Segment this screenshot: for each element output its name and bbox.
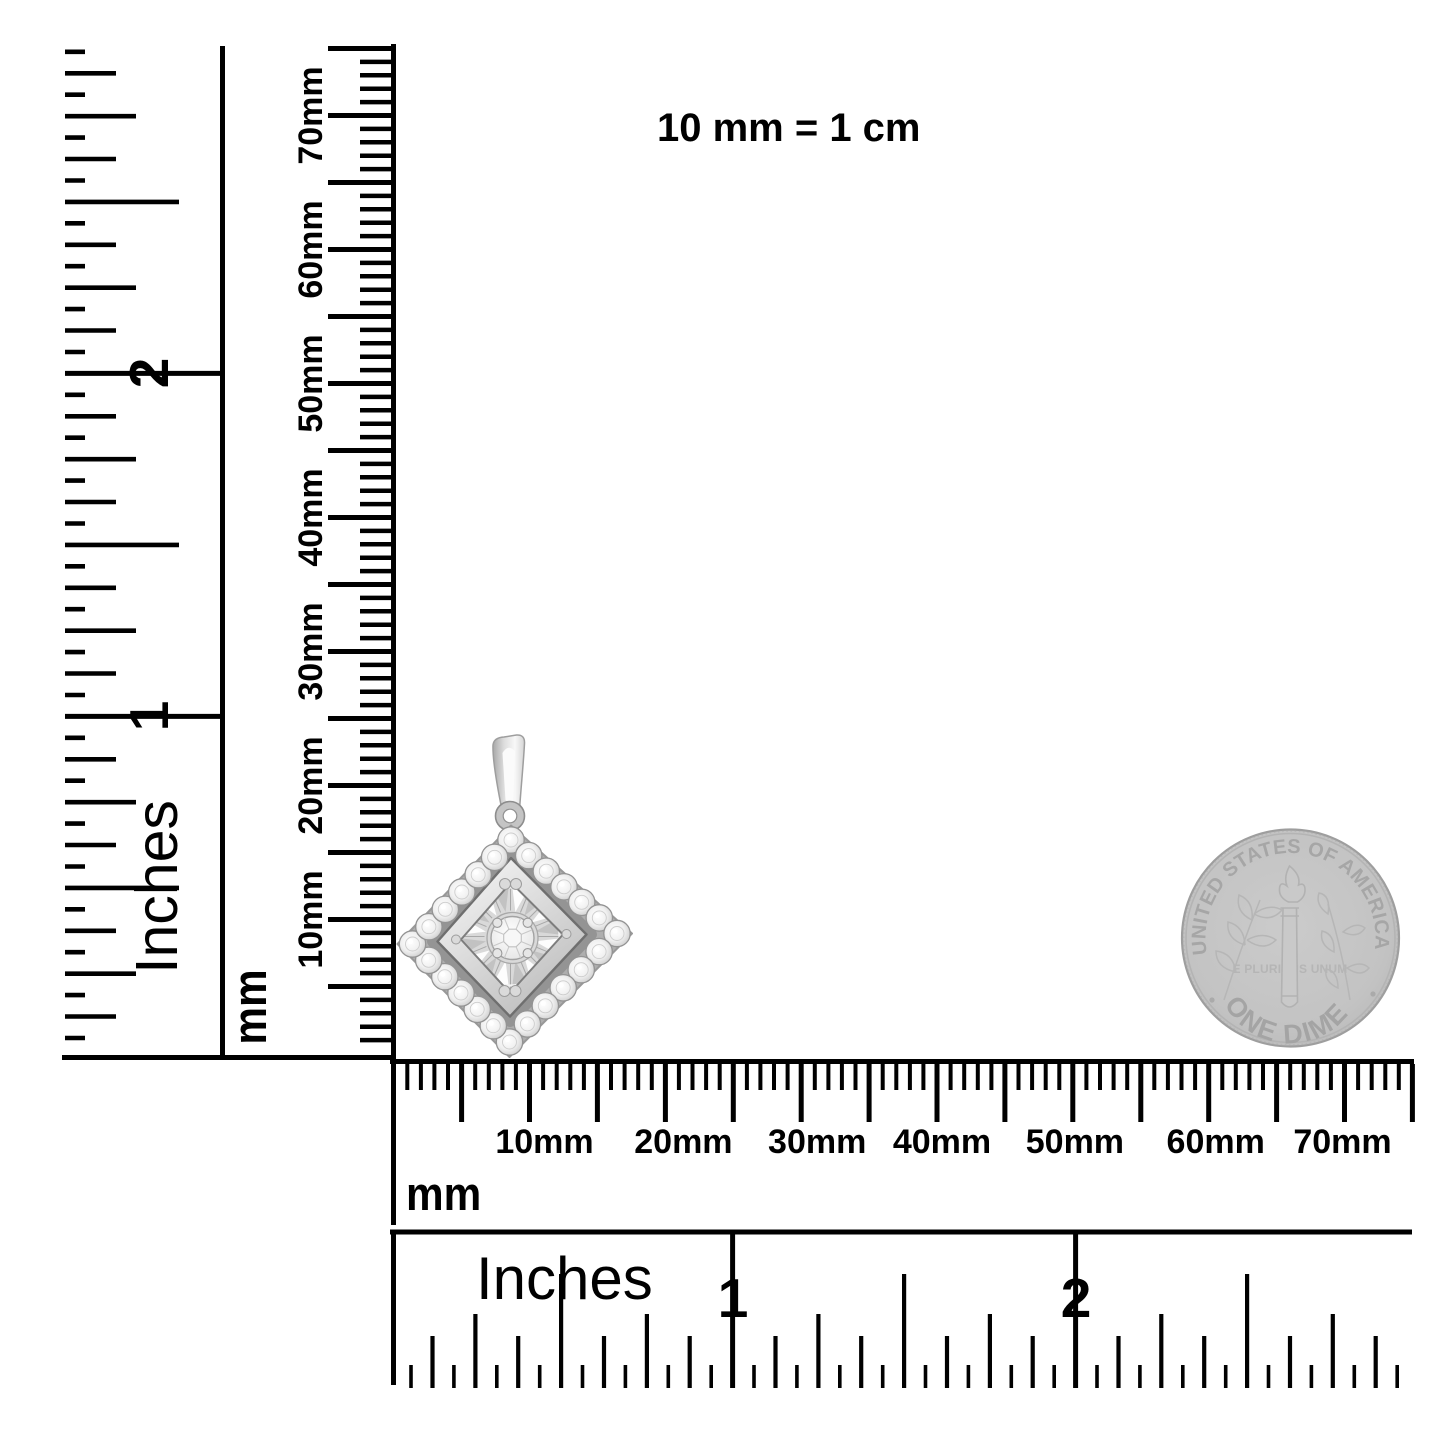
svg-text:50mm: 50mm bbox=[1026, 1123, 1124, 1161]
svg-text:mm: mm bbox=[225, 969, 277, 1044]
svg-text:50mm: 50mm bbox=[292, 334, 330, 432]
svg-text:10 mm = 1 cm: 10 mm = 1 cm bbox=[657, 106, 921, 150]
svg-text:Inches: Inches bbox=[124, 800, 190, 974]
svg-text:40mm: 40mm bbox=[893, 1123, 991, 1161]
svg-text:30mm: 30mm bbox=[768, 1123, 866, 1161]
svg-text:2: 2 bbox=[1061, 1267, 1092, 1329]
svg-text:1: 1 bbox=[718, 1267, 749, 1329]
svg-text:2: 2 bbox=[118, 358, 180, 389]
svg-text:30mm: 30mm bbox=[292, 602, 330, 700]
svg-text:mm: mm bbox=[406, 1169, 481, 1221]
svg-text:60mm: 60mm bbox=[292, 200, 330, 298]
svg-text:10mm: 10mm bbox=[495, 1123, 593, 1161]
svg-text:20mm: 20mm bbox=[634, 1123, 732, 1161]
svg-text:40mm: 40mm bbox=[292, 468, 330, 566]
svg-text:Inches: Inches bbox=[476, 1245, 653, 1312]
svg-text:10mm: 10mm bbox=[292, 870, 330, 968]
svg-text:20mm: 20mm bbox=[292, 736, 330, 834]
svg-text:60mm: 60mm bbox=[1167, 1123, 1265, 1161]
svg-text:70mm: 70mm bbox=[1293, 1123, 1391, 1161]
svg-text:1: 1 bbox=[118, 701, 180, 732]
svg-text:70mm: 70mm bbox=[292, 66, 330, 164]
